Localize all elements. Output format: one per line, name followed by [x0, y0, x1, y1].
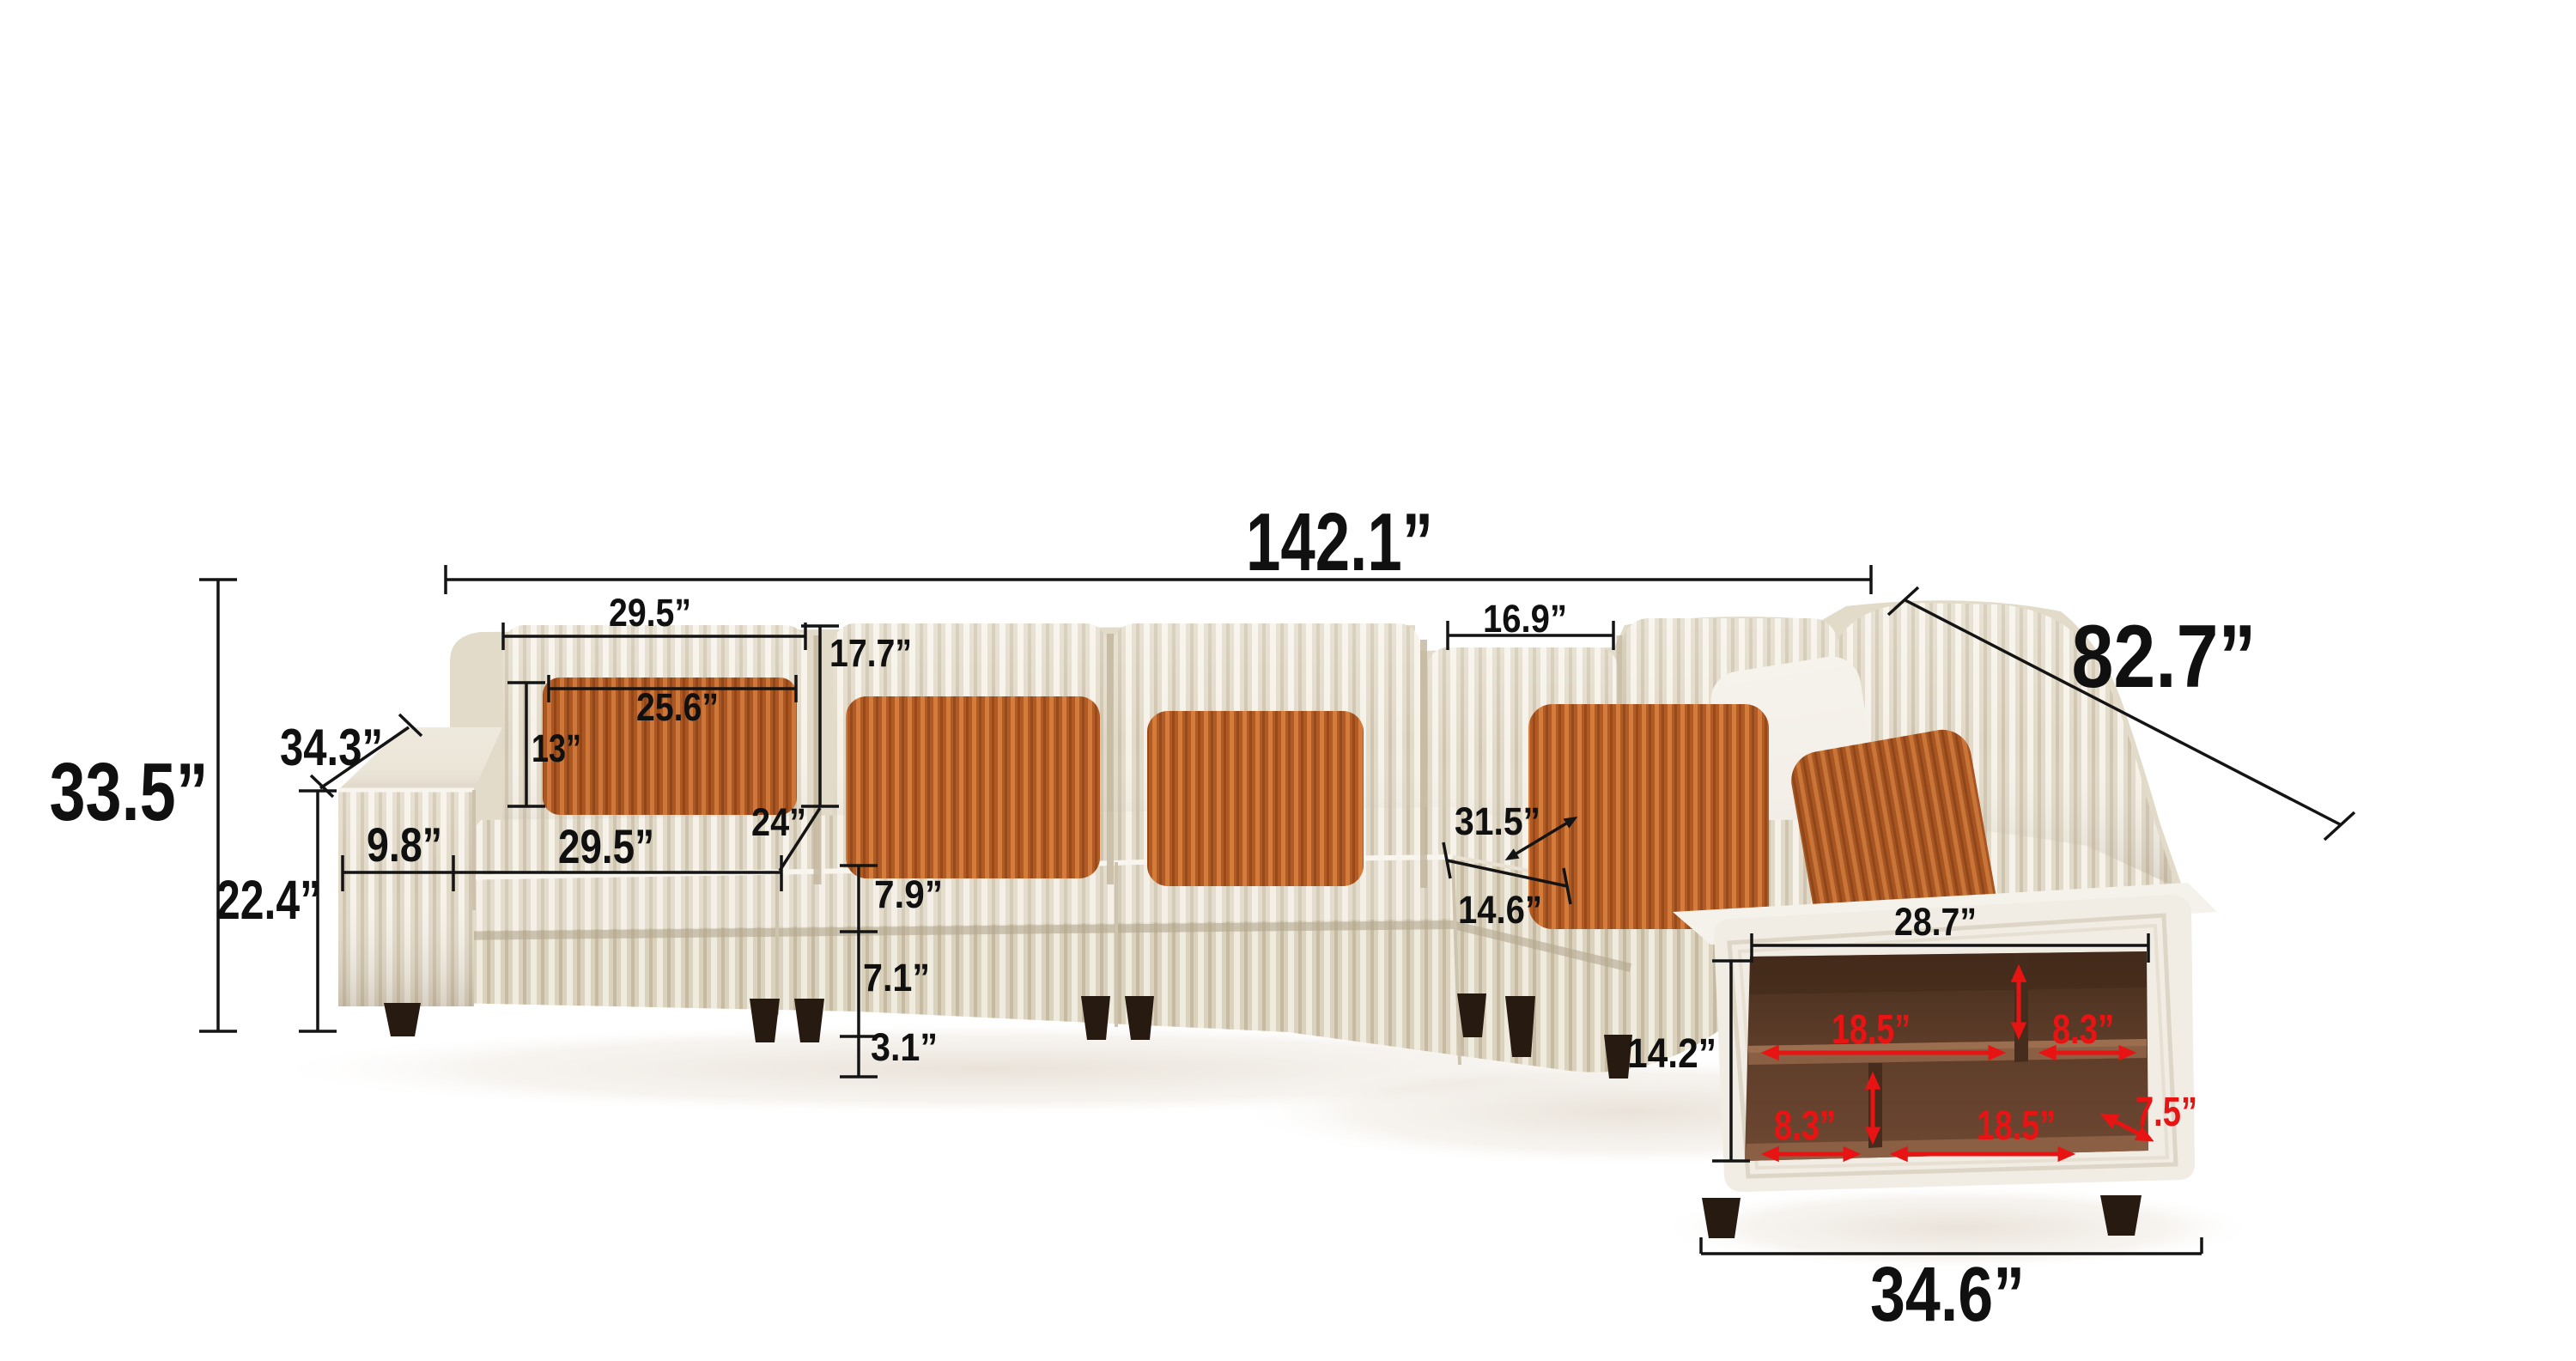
svg-text:7.5”: 7.5”	[2136, 1090, 2197, 1135]
svg-text:18.5”: 18.5”	[1832, 1007, 1911, 1053]
svg-text:34.3”: 34.3”	[280, 719, 383, 776]
svg-text:22.4”: 22.4”	[216, 869, 321, 931]
svg-text:8.3”: 8.3”	[1774, 1103, 1836, 1149]
svg-text:29.5”: 29.5”	[609, 591, 691, 635]
svg-text:8.3”: 8.3”	[2052, 1007, 2114, 1053]
svg-text:34.6”: 34.6”	[1870, 1252, 2025, 1338]
svg-text:142.1”: 142.1”	[1246, 496, 1433, 588]
svg-text:9.8”: 9.8”	[367, 817, 442, 872]
svg-text:7.1”: 7.1”	[863, 956, 930, 999]
svg-text:3.1”: 3.1”	[871, 1025, 938, 1069]
svg-text:28.7”: 28.7”	[1894, 900, 1977, 944]
svg-text:17.7”: 17.7”	[829, 631, 912, 675]
svg-text:14.2”: 14.2”	[1627, 1031, 1716, 1077]
svg-text:29.5”: 29.5”	[558, 819, 654, 873]
svg-text:82.7”: 82.7”	[2072, 607, 2257, 707]
svg-text:14.6”: 14.6”	[1458, 888, 1542, 932]
svg-text:7.9”: 7.9”	[874, 872, 943, 916]
svg-text:18.5”: 18.5”	[1977, 1103, 2056, 1149]
svg-text:33.5”: 33.5”	[50, 746, 209, 838]
svg-text:16.9”: 16.9”	[1483, 597, 1567, 641]
svg-text:24”: 24”	[751, 800, 806, 844]
svg-text:13”: 13”	[532, 726, 581, 770]
svg-text:31.5”: 31.5”	[1455, 799, 1540, 843]
svg-text:25.6”: 25.6”	[636, 685, 719, 729]
